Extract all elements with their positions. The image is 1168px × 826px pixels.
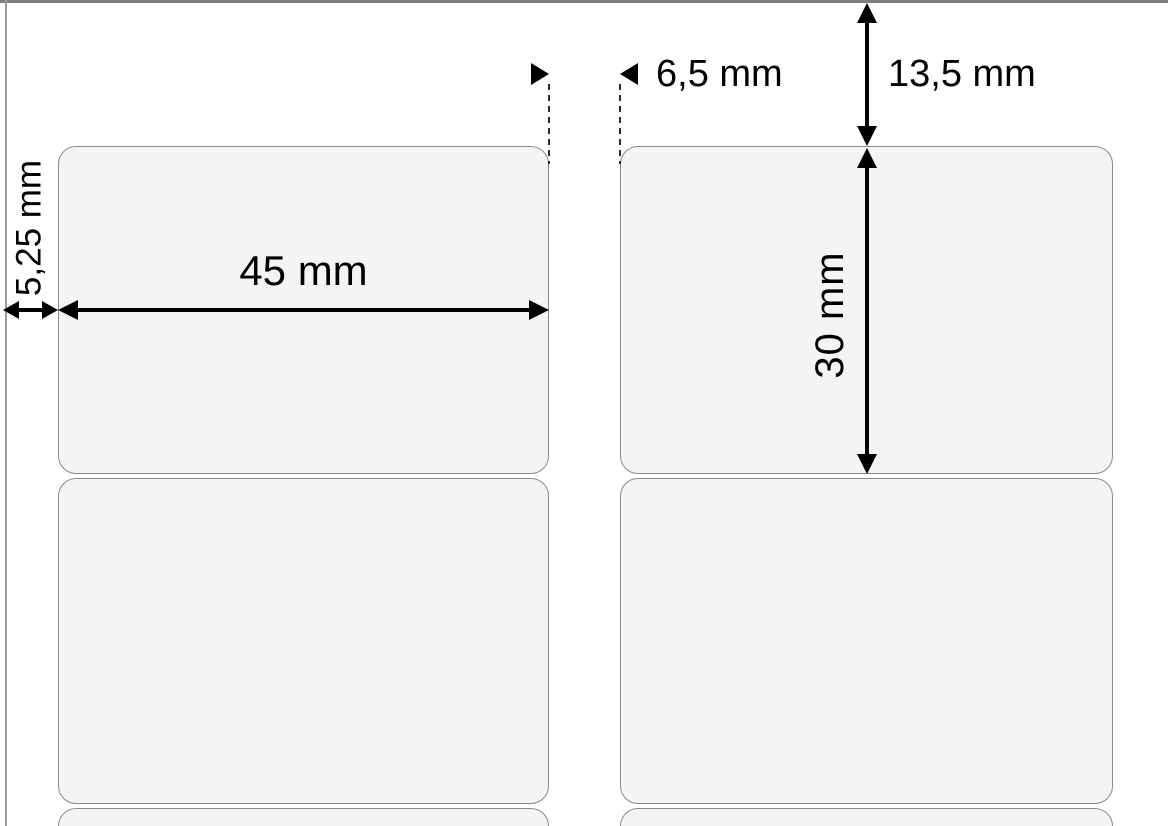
label-sticker [620,808,1113,826]
sheet-top-edge [0,0,1168,3]
gap-pointer-right-icon [531,63,549,85]
dim-top-margin-text: 13,5 mm [888,55,1036,93]
dim-arrow-top-margin [857,3,877,146]
sheet-left-edge [5,0,7,826]
label-sticker [620,478,1113,804]
label-sheet-diagram: 45 mm 30 mm 5,25 mm 6,5 mm 13,5 mm [0,0,1168,826]
gap-guide-line [619,84,621,164]
dim-line [865,164,869,458]
dim-label-width-text: 45 mm [58,250,549,292]
label-sticker [58,478,549,804]
dim-line [74,308,533,312]
dim-line [865,19,869,130]
dim-arrow-label-height [857,148,877,474]
dim-column-gap-text: 6,5 mm [656,55,783,93]
dim-line [13,308,48,312]
gap-guide-line [548,84,550,164]
dim-left-margin-text: 5,25 mm [12,160,47,296]
dim-arrow-label-width [58,300,549,320]
label-sticker [58,808,549,826]
dim-label-height-text: 30 mm [810,251,850,378]
dim-arrow-left-margin [3,300,58,320]
gap-pointer-left-icon [620,63,638,85]
